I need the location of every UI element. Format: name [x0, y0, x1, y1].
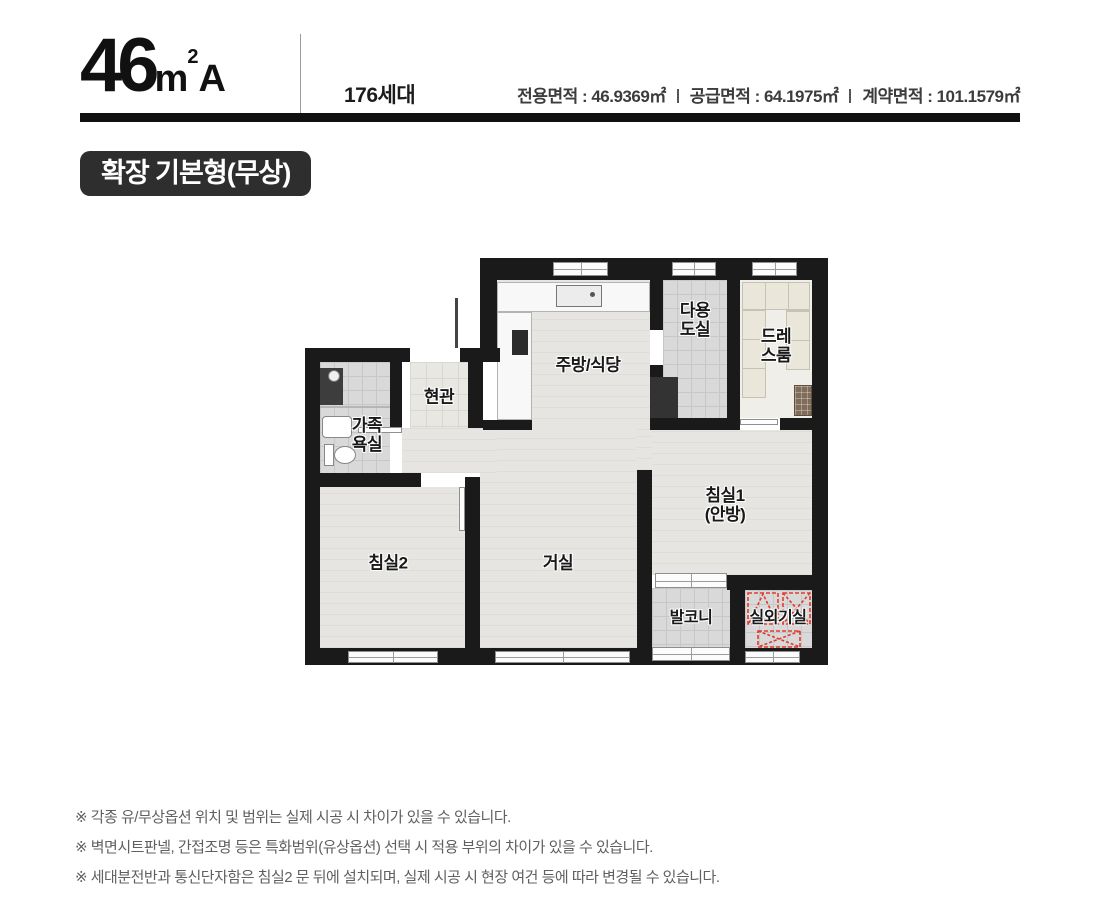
wall-cabinet-stub	[483, 420, 532, 430]
dressroom-chest	[794, 385, 812, 416]
wall-right	[812, 258, 828, 665]
area-separator	[849, 89, 851, 103]
footnotes: ※ 각종 유/무상옵션 위치 및 범위는 실제 시공 시 차이가 있을 수 있습…	[75, 806, 720, 896]
label-entrance: 현관	[424, 388, 454, 407]
door-bedroom2	[459, 487, 465, 531]
sink-faucet	[590, 292, 595, 297]
wall-bath-bed2	[305, 473, 421, 487]
area-supply: 공급면적 : 64.1975㎡	[690, 87, 839, 106]
label-bedroom2: 침실2	[368, 554, 407, 573]
option-type-badge: 확장 기본형(무상)	[80, 151, 311, 196]
unit-size-number: 46	[80, 23, 155, 108]
wall-kitchen-utility-a	[650, 280, 663, 330]
label-kitchen-dining: 주방/식당	[556, 356, 621, 375]
wall-entrance-right	[468, 348, 483, 428]
wall-utility-bottom	[650, 418, 740, 430]
door-entrance-leaf	[455, 298, 458, 348]
footnote-3: ※ 세대분전반과 통신단자함은 침실2 문 뒤에 설치되며, 실제 시공 시 현…	[75, 866, 720, 887]
window-balcony	[652, 647, 730, 661]
dressroom-wardrobe-top	[742, 282, 810, 310]
window-utility-top	[672, 262, 716, 276]
unit-type-title: 46m2A	[80, 28, 225, 104]
window-bed1-balcony	[655, 573, 727, 588]
footnote-2: ※ 벽면시트판넬, 간접조명 등은 특화범위(유상옵션) 선택 시 적용 부위의…	[75, 836, 720, 857]
header-rule	[80, 113, 1020, 122]
shower-head	[328, 370, 340, 382]
label-utility-room: 다용도실	[680, 301, 710, 339]
hallway-floor	[402, 428, 497, 473]
label-family-bath: 가족욕실	[352, 416, 382, 454]
shower-partition	[320, 406, 390, 408]
floor-plan: 주방/식당 다용도실 드레스룸 현관 가족욕실 침실2 거실 침실1(안방) 발…	[300, 258, 828, 665]
households-count: 176세대	[344, 79, 415, 109]
window-bedroom2	[348, 651, 438, 663]
wall-bath-right	[390, 362, 402, 430]
washbasin	[322, 416, 352, 438]
wall-left	[305, 348, 320, 665]
living-floor	[480, 428, 637, 648]
wall-kitchen-left	[480, 258, 497, 362]
label-living-room: 거실	[543, 554, 573, 573]
header-divider	[300, 34, 301, 113]
label-outdoor-unit-room: 실외기실	[750, 609, 807, 628]
toilet-tank	[324, 444, 334, 466]
footnote-1: ※ 각종 유/무상옵션 위치 및 범위는 실제 시공 시 차이가 있을 수 있습…	[75, 806, 720, 827]
area-contract: 계약면적 : 101.1579㎡	[862, 87, 1020, 106]
wall-dress-bottom	[780, 418, 812, 430]
label-bedroom1: 침실1(안방)	[705, 486, 746, 524]
wall-utility-dress	[727, 280, 740, 418]
wall-kitchen-utility-b	[650, 365, 663, 377]
wall-bed2-living	[465, 477, 480, 648]
area-separator	[677, 89, 679, 103]
kitchen-sink	[556, 285, 602, 307]
utility-storage	[650, 377, 678, 418]
wall-living-bed1	[637, 470, 652, 648]
cooktop	[512, 330, 528, 355]
label-dress-room: 드레스룸	[761, 327, 791, 365]
window-kitchen-top	[553, 262, 608, 276]
label-balcony: 발코니	[670, 609, 713, 628]
area-exclusive: 전용면적 : 46.9369㎡	[517, 87, 666, 106]
wall-balcony-outdoor	[730, 588, 745, 648]
window-dressroom-top	[752, 262, 797, 276]
window-outdoor-vent	[745, 651, 800, 663]
door-dressroom	[740, 419, 778, 425]
corridor-floor	[637, 430, 652, 470]
area-specs: 전용면적 : 46.9369㎡공급면적 : 64.1975㎡계약면적 : 101…	[517, 82, 1020, 107]
wall-bath-top	[305, 348, 410, 362]
window-living	[495, 651, 630, 663]
kitchen-counter-side	[497, 312, 532, 420]
